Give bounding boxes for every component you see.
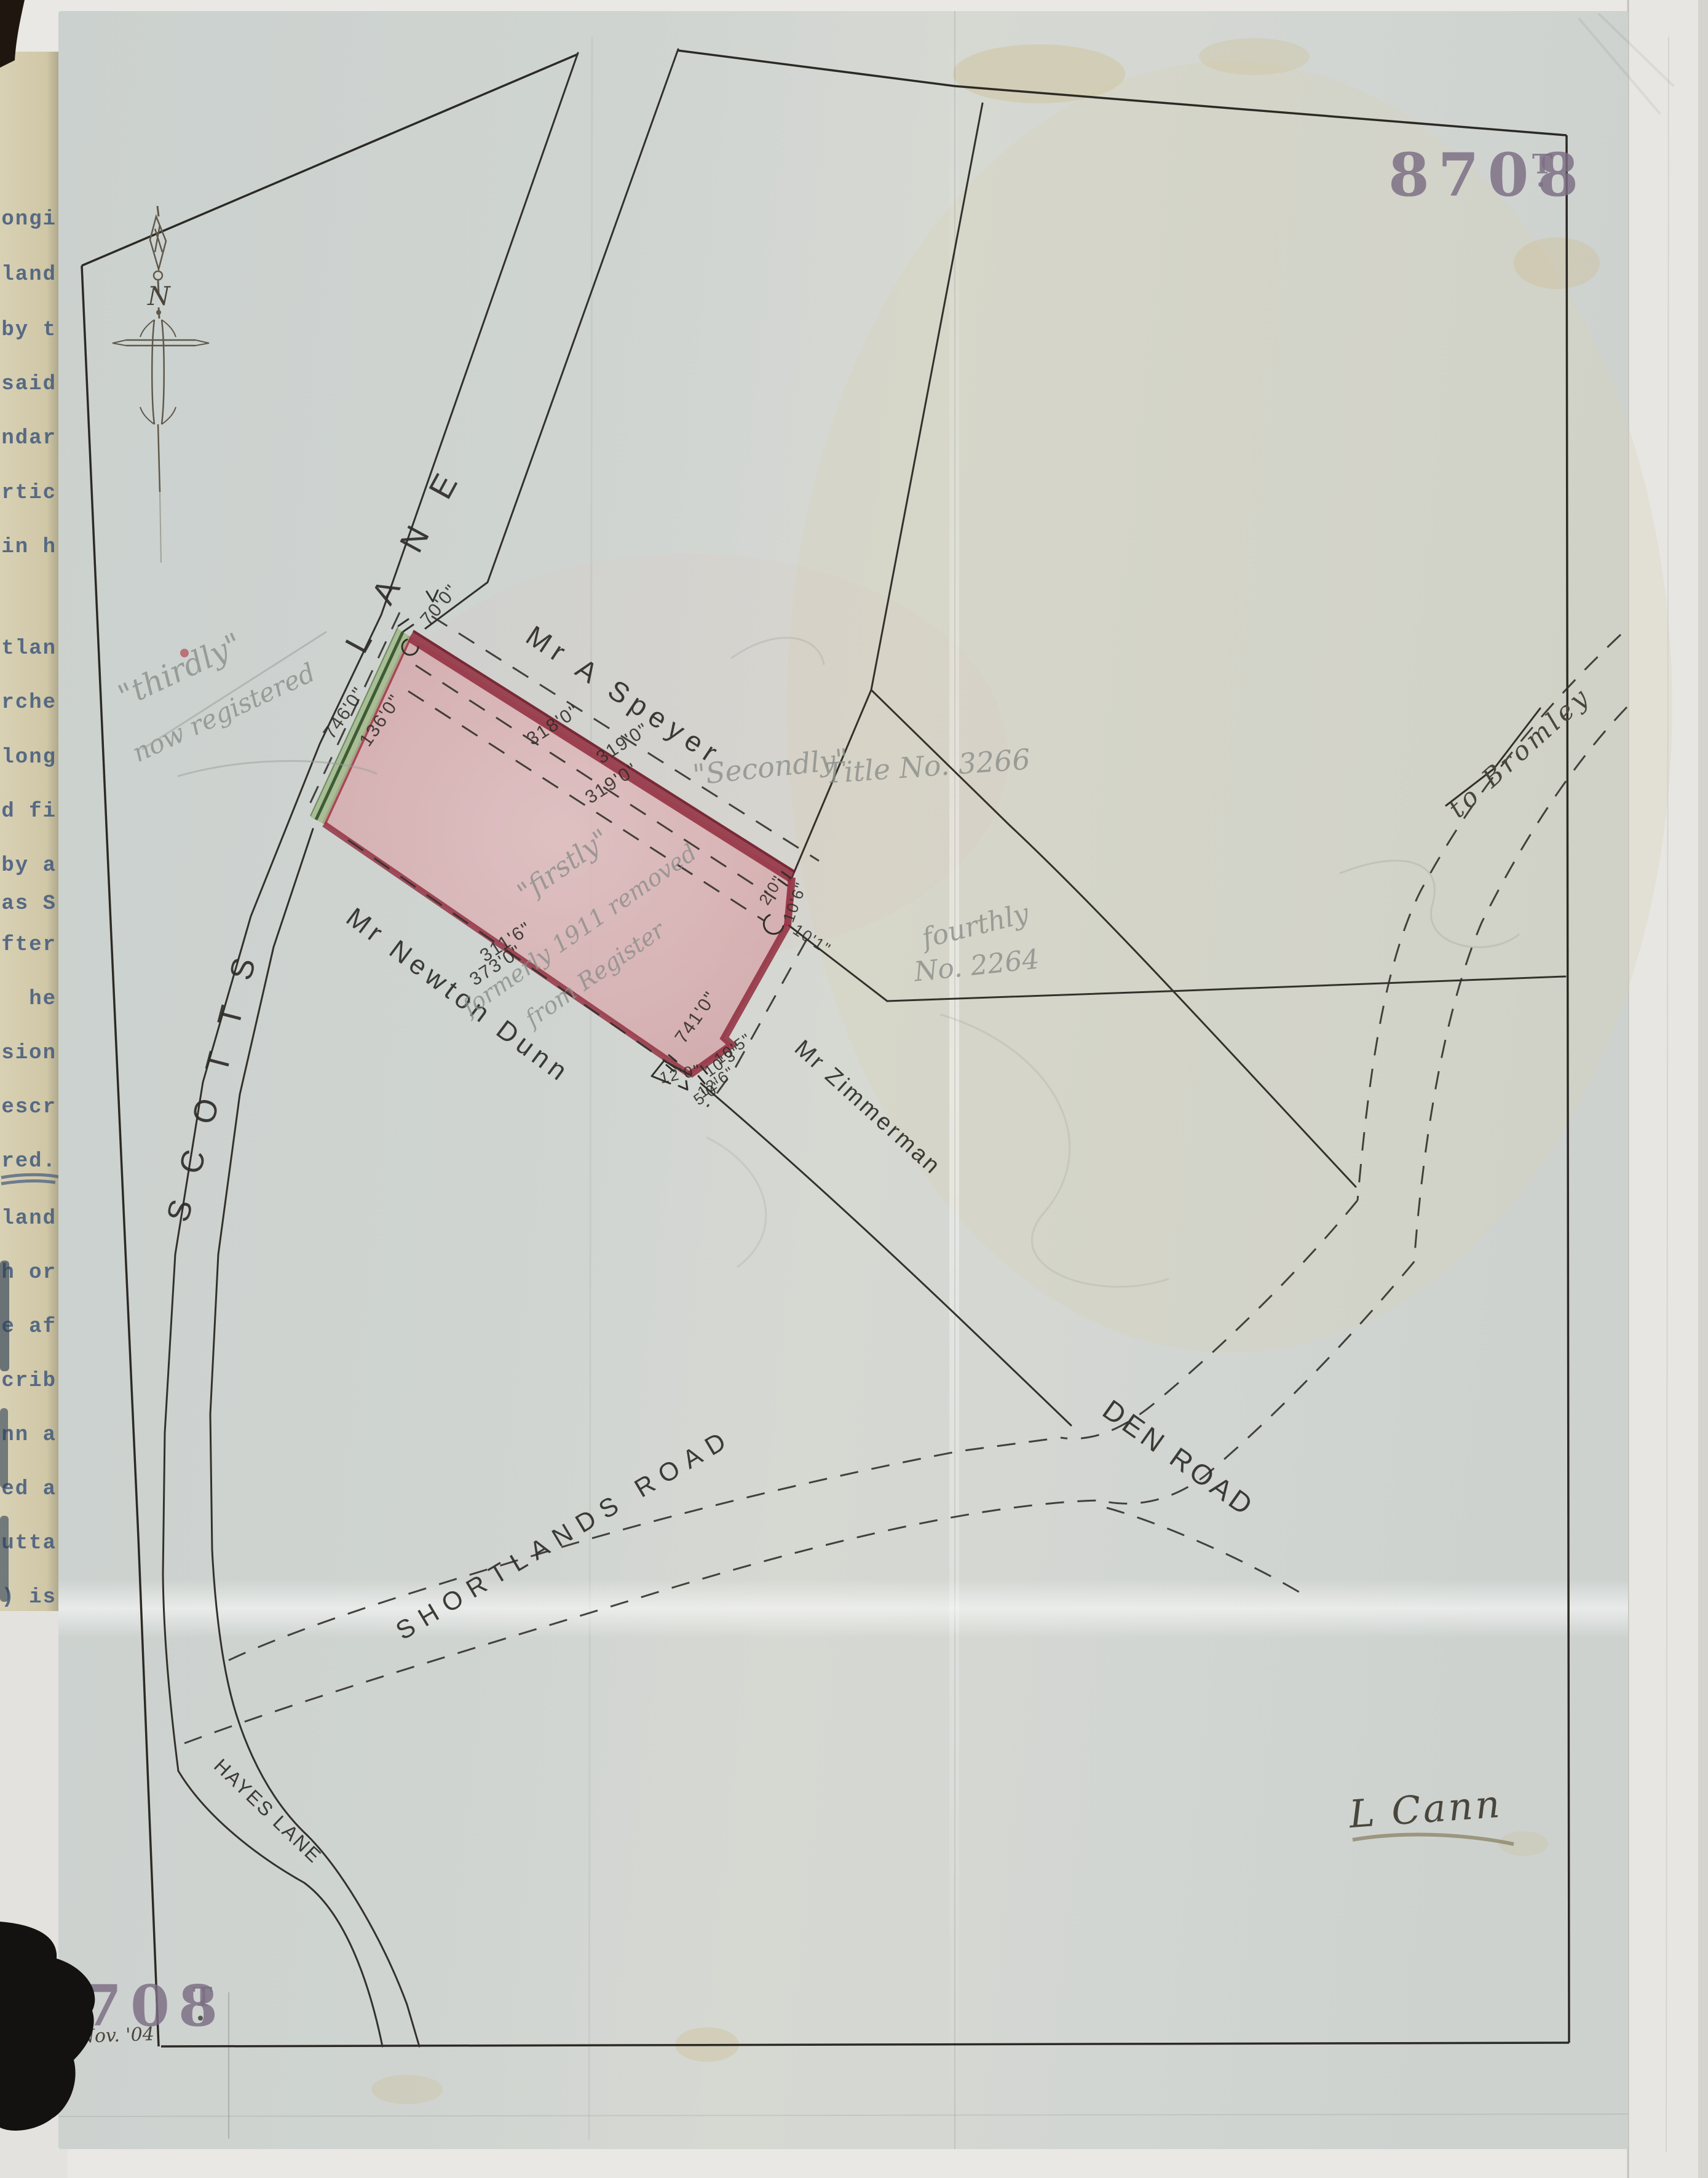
- typed-line-fragment: belong: [0, 746, 57, 769]
- typed-line-fragment: st by t: [0, 319, 57, 342]
- typed-line-fragment: rtland: [0, 1207, 57, 1230]
- page-edge-mark: [0, 1516, 9, 1602]
- north-label: N: [147, 281, 171, 311]
- typed-line-fragment: ) is: [1, 1586, 57, 1609]
- page-edge-mark: [0, 1261, 9, 1371]
- typed-line-fragment: belongi: [0, 208, 57, 231]
- typed-line-fragment: red.: [1, 1150, 57, 1173]
- survey-plan-canvas: belongiof landst by tsaidoundarparticrgi…: [0, 0, 1708, 2178]
- stain: [1199, 38, 1310, 75]
- typed-line-fragment: by a: [1, 854, 57, 877]
- typed-line-fragment: hortlan: [0, 637, 57, 660]
- typed-line-fragment: nd fi: [0, 800, 57, 823]
- typed-line-fragment: after: [0, 933, 57, 957]
- stain: [371, 2075, 443, 2104]
- stain: [953, 44, 1125, 103]
- typed-line-fragment: of land: [0, 263, 57, 287]
- plan-number-stamp: 8708 T: [1388, 140, 1587, 210]
- typed-line-fragment: as S: [1, 892, 57, 916]
- typed-line-fragment: descr: [0, 1096, 57, 1119]
- typed-line-fragment: scrib: [0, 1369, 57, 1393]
- scan-edge-shadow: [1698, 0, 1708, 2178]
- typed-line-fragment: perche: [0, 691, 57, 715]
- horizontal-fold-sheen: [58, 1579, 1628, 1638]
- typed-line-fragment: oundar: [0, 427, 57, 450]
- typed-line-fragment: said: [1, 373, 57, 396]
- scanned-survey-plan-page: belongiof landst by tsaidoundarparticrgi…: [0, 0, 1708, 2178]
- plan-number-partial-suffix: T: [193, 1982, 221, 2012]
- typed-line-fragment: nsion: [0, 1042, 57, 1065]
- stain: [1514, 237, 1600, 289]
- typed-line-fragment: rgin h: [0, 536, 57, 559]
- page-edge-mark: [0, 1408, 8, 1488]
- typed-line-fragment: Dunn a: [0, 1424, 57, 1447]
- typed-line-fragment: partic: [0, 481, 57, 505]
- typed-line-fragment: he: [29, 988, 57, 1011]
- plan-number-suffix: T: [1532, 149, 1561, 180]
- typed-line-fragment: ibed a: [0, 1478, 57, 1501]
